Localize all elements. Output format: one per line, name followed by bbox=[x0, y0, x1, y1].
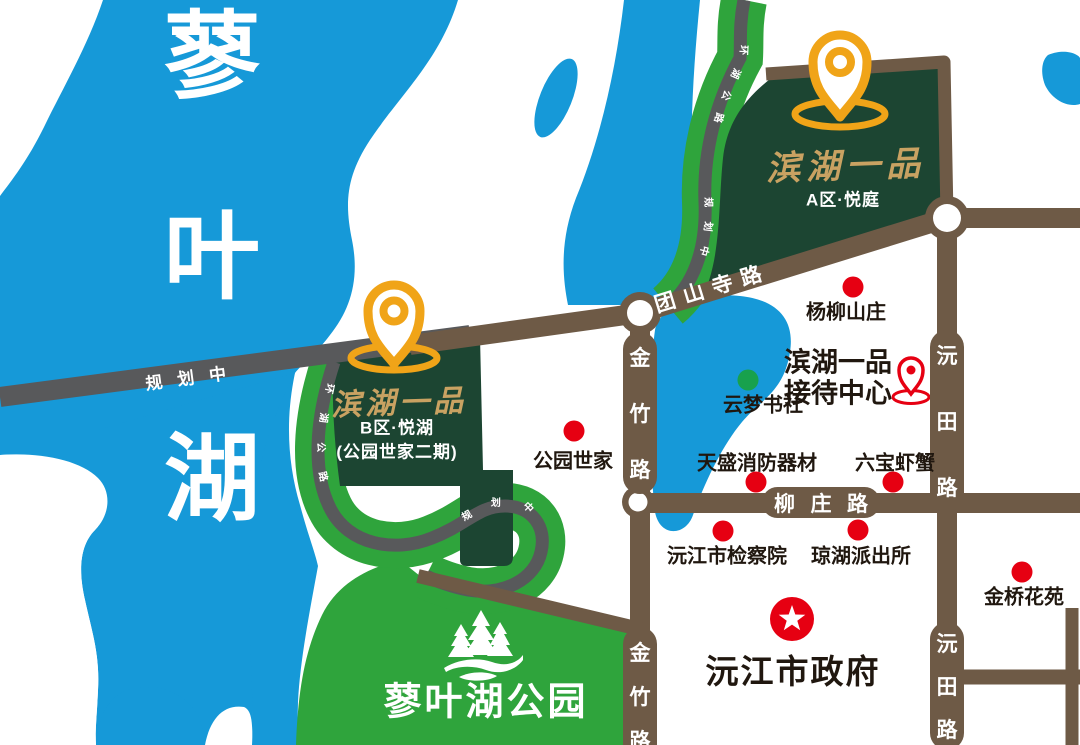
poi-paichusuo-label: 琼湖派出所 bbox=[811, 540, 911, 569]
poi-yangliushanzhuang-dot bbox=[843, 277, 864, 298]
parcel-a-name: 滨湖一品 bbox=[765, 136, 927, 191]
badge-char: 路 bbox=[630, 454, 651, 484]
poi-jinqiaohuayuan-label: 金桥花苑 bbox=[984, 581, 1064, 610]
badge-char: 竹 bbox=[630, 681, 651, 711]
poi-jianchayuan-dot bbox=[713, 521, 734, 542]
badge-char: 沅 bbox=[937, 340, 958, 370]
badge-char: 路 bbox=[847, 488, 868, 518]
parcel-b-subtitle2: (公园世家二期) bbox=[336, 438, 457, 463]
badge-char: 路 bbox=[630, 725, 651, 745]
road-badge-liuzhuang: 柳 庄 路 bbox=[762, 487, 880, 518]
reception-label-line2: 接待中心 bbox=[784, 372, 892, 411]
lake-title-char-1: 蓼 bbox=[164, 10, 260, 106]
poi-gongyuanshijia-dot bbox=[564, 421, 585, 442]
badge-char: 路 bbox=[937, 714, 958, 744]
poi-liubaoxiaxie-dot bbox=[883, 472, 904, 493]
parcel-b-subtitle: B区·悦湖 bbox=[360, 414, 434, 439]
badge-char: 田 bbox=[937, 406, 958, 436]
badge-char: 柳 bbox=[774, 488, 795, 518]
poi-gongyuanshijia-label: 公园世家 bbox=[533, 445, 613, 474]
badge-char: 沅 bbox=[937, 628, 958, 658]
government-label: 沅江市政府 bbox=[706, 645, 881, 693]
road-badge-yuantian-north: 沅 田 路 bbox=[930, 330, 964, 512]
poi-tianshengxiaofang-dot bbox=[746, 472, 767, 493]
badge-char: 金 bbox=[630, 637, 651, 667]
badge-char: 路 bbox=[937, 472, 958, 502]
park-label: 蓼叶湖公园 bbox=[383, 671, 588, 726]
road-badge-jinzhu-north: 金 竹 路 bbox=[623, 332, 657, 494]
poi-yunmengshushe-dot bbox=[738, 370, 759, 391]
lake-topright bbox=[1042, 52, 1080, 105]
road-badge-yuantian-south: 沅 田 路 bbox=[930, 622, 964, 745]
lake-title-char-3: 湖 bbox=[164, 432, 260, 528]
lake-sliver bbox=[525, 53, 586, 143]
road-badge-jinzhu-south: 金 竹 路 bbox=[623, 627, 657, 745]
badge-char: 金 bbox=[630, 342, 651, 372]
parcel-a-subtitle: A区·悦庭 bbox=[806, 186, 880, 211]
poi-paichusuo-dot bbox=[848, 520, 869, 541]
badge-char: 竹 bbox=[630, 398, 651, 428]
poi-jianchayuan-label: 沅江市检察院 bbox=[667, 540, 787, 569]
map-canvas: 环湖公路 规划中 环湖公路 规划中 bbox=[0, 0, 1080, 745]
government-star-icon bbox=[770, 597, 814, 641]
poi-jinqiaohuayuan-dot bbox=[1012, 562, 1033, 583]
reception-pin-icon bbox=[893, 358, 929, 404]
roundabout-tuanshansi-yuantian bbox=[925, 196, 969, 240]
lake-title-char-2: 叶 bbox=[164, 210, 260, 306]
badge-char: 田 bbox=[937, 671, 958, 701]
badge-char: 庄 bbox=[811, 488, 832, 518]
poi-yangliushanzhuang-label: 杨柳山庄 bbox=[806, 296, 886, 325]
